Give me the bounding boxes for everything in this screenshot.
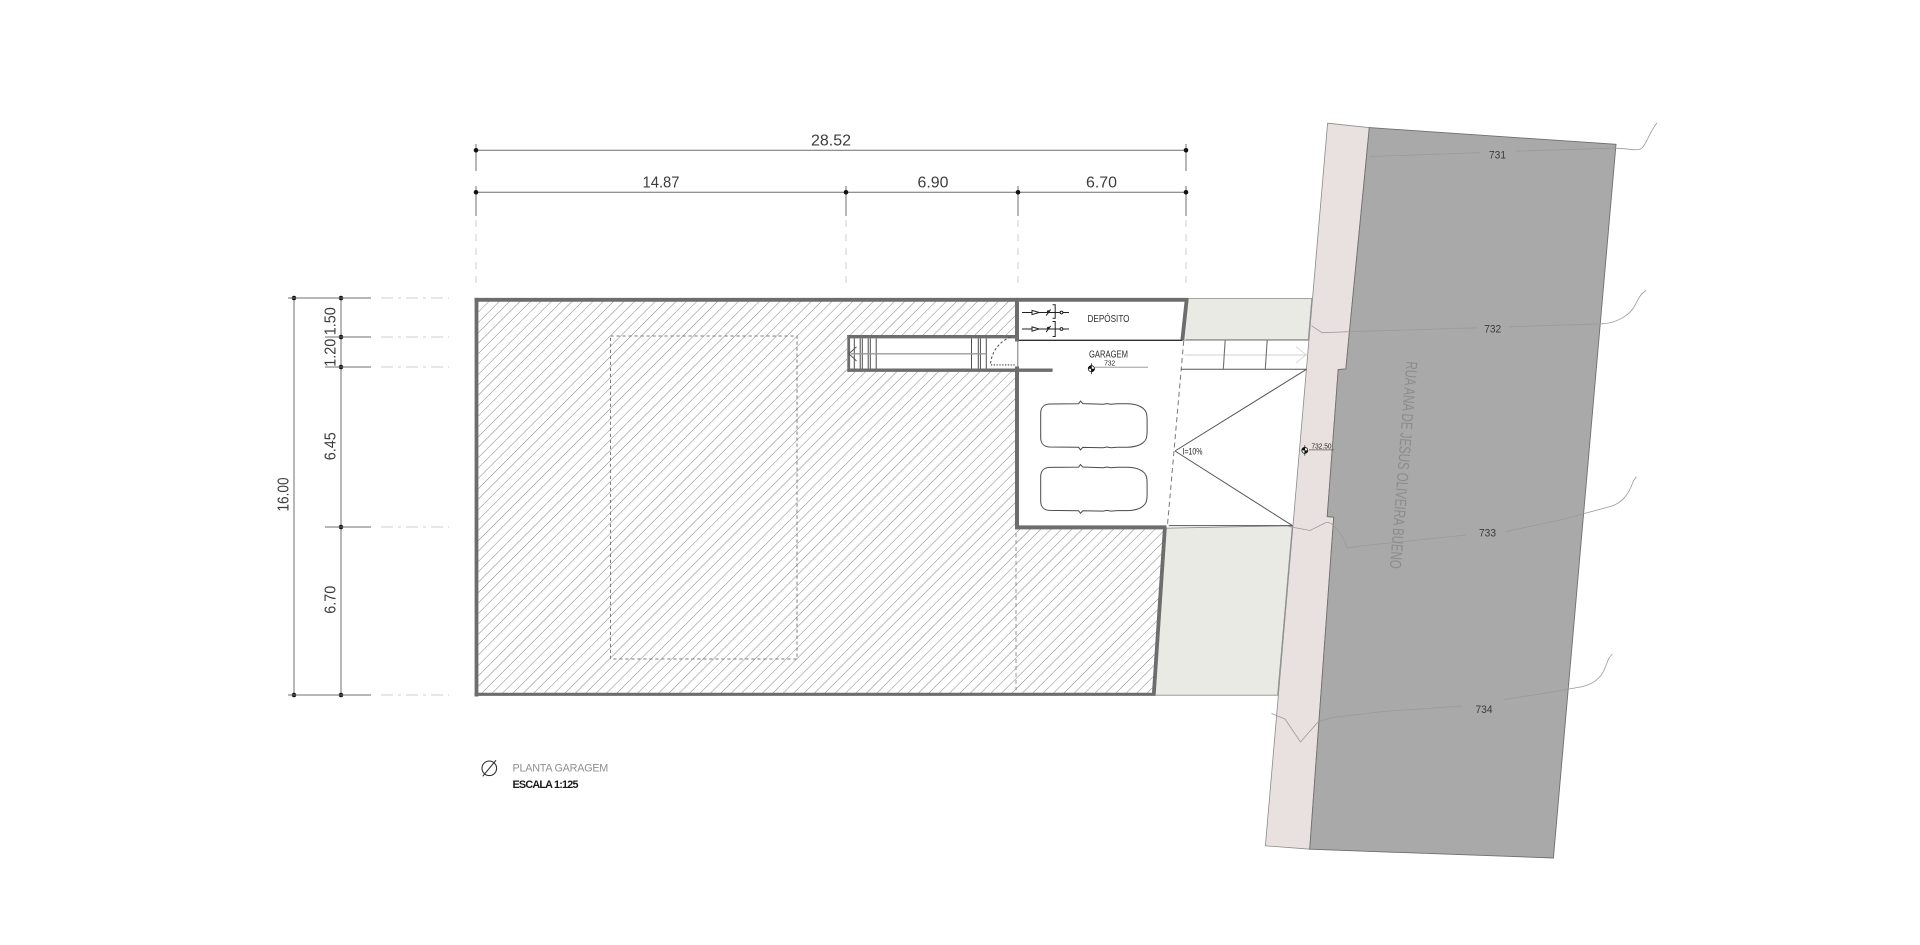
svg-text:731: 731 xyxy=(1489,150,1506,162)
svg-text:6.90: 6.90 xyxy=(918,174,949,191)
svg-text:14.87: 14.87 xyxy=(643,174,680,191)
svg-text:6.45: 6.45 xyxy=(323,432,340,460)
svg-text:PLANTA GARAGEM: PLANTA GARAGEM xyxy=(513,763,610,775)
svg-text:732: 732 xyxy=(1484,323,1501,335)
svg-text:28.52: 28.52 xyxy=(811,132,851,149)
svg-text:734: 734 xyxy=(1476,704,1493,716)
svg-text:1.50: 1.50 xyxy=(323,307,340,335)
svg-text:732.50: 732.50 xyxy=(1312,441,1332,450)
svg-text:6.70: 6.70 xyxy=(1086,174,1117,191)
svg-text:732: 732 xyxy=(1104,358,1115,367)
svg-text:ESCALA 1:125: ESCALA 1:125 xyxy=(513,779,579,791)
svg-text:I=10%: I=10% xyxy=(1183,447,1203,457)
svg-text:DEPÓSITO: DEPÓSITO xyxy=(1088,312,1130,325)
svg-text:6.70: 6.70 xyxy=(323,585,340,613)
svg-text:16.00: 16.00 xyxy=(276,477,293,511)
svg-text:1.20: 1.20 xyxy=(323,338,340,366)
svg-text:733: 733 xyxy=(1479,528,1496,540)
